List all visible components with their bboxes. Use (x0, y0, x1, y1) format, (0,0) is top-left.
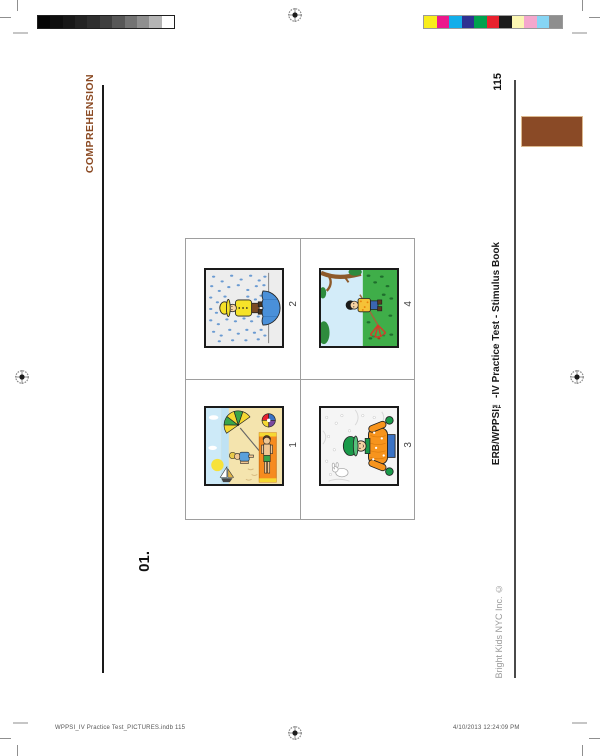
picture-number-label: 2 (289, 301, 299, 307)
bleed-tick (13, 32, 28, 34)
color-swatch (162, 16, 174, 28)
section-label: COMPREHENSION (85, 74, 96, 173)
color-swatch (50, 16, 62, 28)
color-swatch (38, 16, 50, 28)
page-number: 115 (493, 73, 504, 91)
color-swatch (524, 16, 537, 28)
color-swatch (87, 16, 99, 28)
color-calibration-bar (424, 16, 562, 28)
crop-mark (17, 0, 18, 11)
crop-mark (589, 738, 600, 739)
grid-cell: 2 (186, 239, 300, 379)
color-swatch (537, 16, 550, 28)
color-swatch (112, 16, 124, 28)
color-swatch (549, 16, 562, 28)
crop-mark (17, 745, 18, 756)
picture-snowy-day (319, 406, 399, 486)
item-number: 01. (137, 551, 152, 572)
color-swatch (437, 16, 450, 28)
right-rule-divider (514, 80, 516, 678)
footer-timestamp: 4/10/2013 12:24:09 PM (453, 725, 520, 731)
color-swatch (449, 16, 462, 28)
book-title: ERB/WPPSI™-IV Practice Test - Stimulus B… (492, 242, 502, 465)
grid-cell: 4 (301, 239, 415, 379)
color-swatch (149, 16, 161, 28)
crop-mark (589, 17, 600, 18)
crop-mark (582, 745, 583, 756)
publisher-credit: Bright Kids NYC Inc. © (495, 584, 504, 679)
color-swatch (462, 16, 475, 28)
bleed-tick (572, 32, 587, 34)
picture-number-label: 1 (289, 442, 299, 448)
picture-rainy-day (204, 268, 284, 348)
color-swatch (100, 16, 112, 28)
crop-mark (0, 738, 11, 739)
color-swatch (137, 16, 149, 28)
grid-cell: 1 (186, 380, 300, 520)
color-swatch (63, 16, 75, 28)
registration-mark-icon (14, 369, 30, 385)
color-swatch (474, 16, 487, 28)
registration-mark-icon (569, 369, 585, 385)
picture-beach-scene (204, 406, 284, 486)
crop-mark (582, 0, 583, 11)
color-swatch (512, 16, 525, 28)
color-swatch (499, 16, 512, 28)
crop-mark (0, 17, 11, 18)
picture-number-label: 4 (404, 301, 414, 307)
picture-raking-leaves (319, 268, 399, 348)
picture-number-label: 3 (404, 442, 414, 448)
grayscale-calibration-bar (38, 16, 174, 28)
picture-grid: 2 (185, 238, 415, 520)
footer-file-info: WPPSI_IV Practice Test_PICTURES.indb 115 (55, 725, 185, 731)
color-swatch (75, 16, 87, 28)
registration-mark-icon (287, 7, 303, 23)
color-swatch (125, 16, 137, 28)
bleed-tick (572, 722, 587, 724)
grid-cell: 3 (301, 380, 415, 520)
bleed-tick (13, 722, 28, 724)
color-swatch (487, 16, 500, 28)
left-rule-divider (102, 85, 104, 673)
section-color-tab (521, 116, 583, 147)
registration-mark-icon (287, 725, 303, 741)
color-swatch (424, 16, 437, 28)
